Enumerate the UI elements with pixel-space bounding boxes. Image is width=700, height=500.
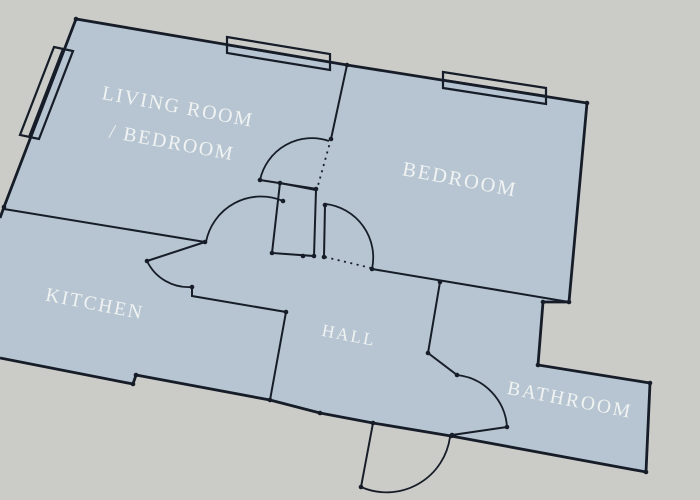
door-bedroom-leaf [324,205,325,257]
floor-plan: LIVING ROOM / BEDROOM BEDROOM KITCHEN HA… [0,0,700,500]
door-entrance-leaf [361,423,373,487]
door-entrance-arc [361,437,450,492]
